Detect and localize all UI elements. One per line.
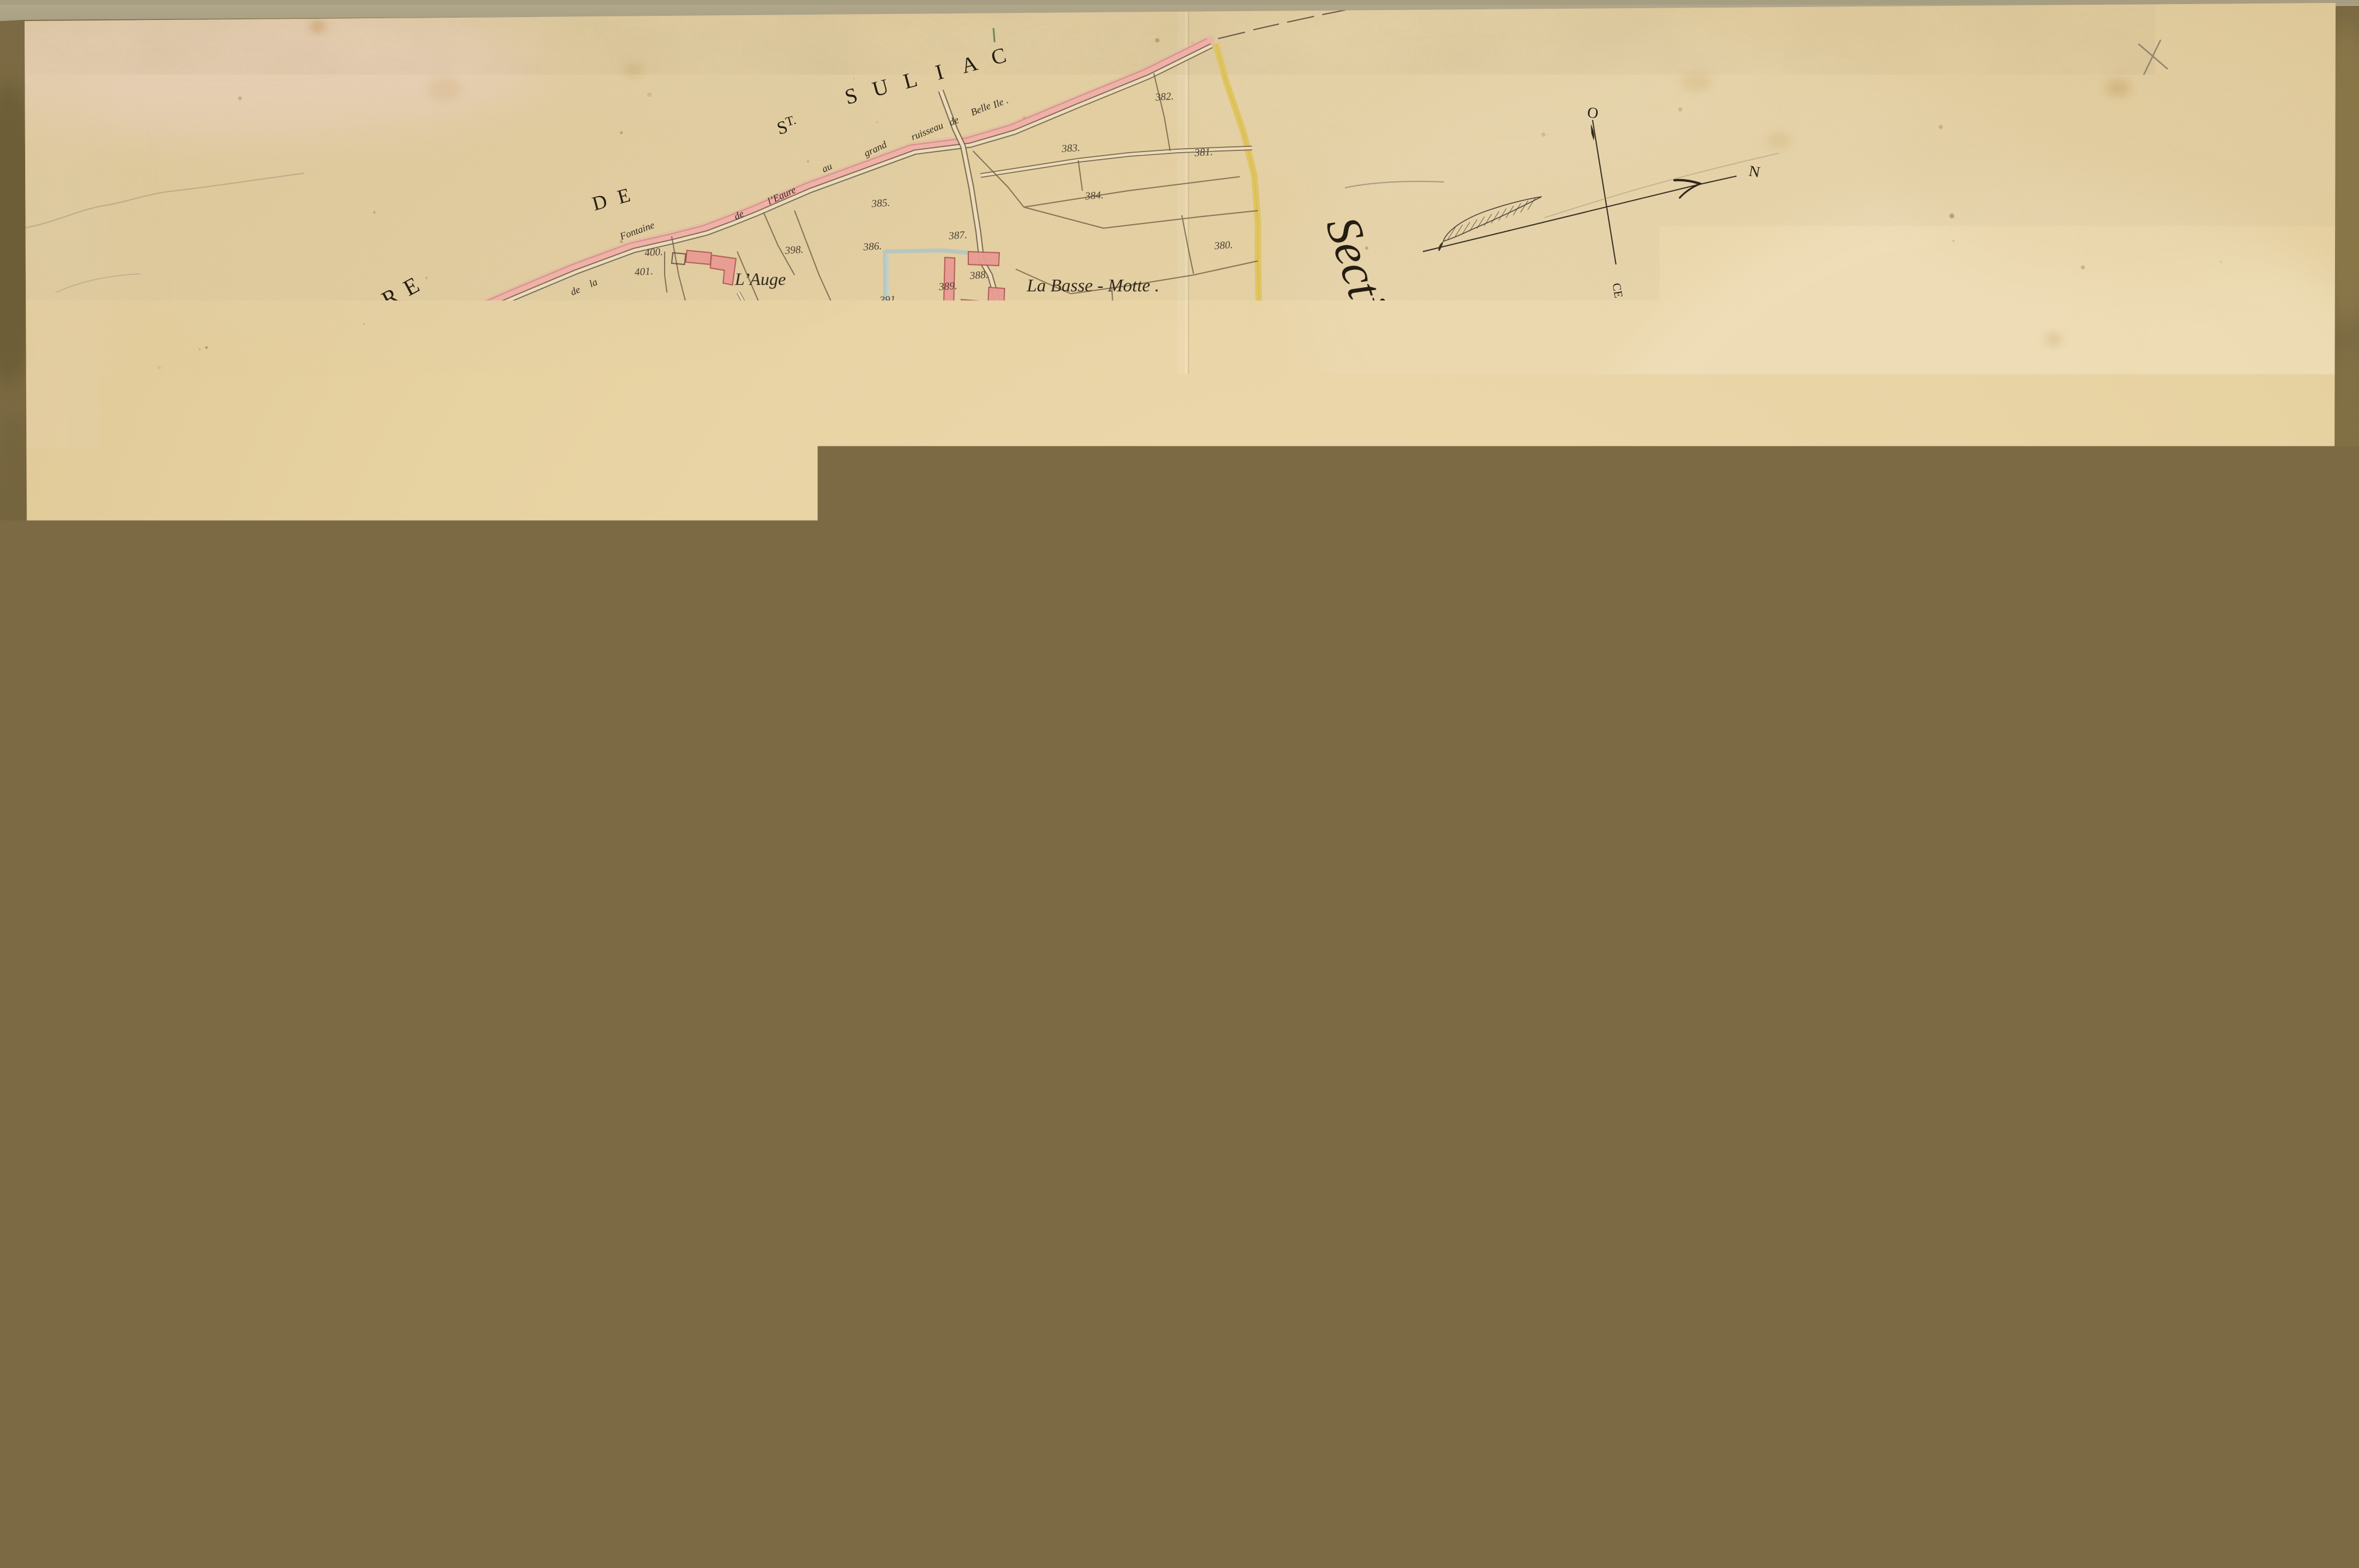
svg-text:432.: 432. [701, 699, 721, 711]
svg-text:344.: 344. [1483, 1111, 1503, 1124]
svg-text:426.: 426. [559, 820, 578, 833]
svg-text:422.: 422. [1084, 1140, 1103, 1153]
svg-text:353.: 353. [1181, 1107, 1201, 1120]
svg-text:398.: 398. [784, 243, 804, 256]
svg-text:419.: 419. [953, 909, 972, 922]
svg-text:351.: 351. [1216, 1141, 1236, 1154]
svg-text:425.: 425. [723, 849, 742, 862]
svg-text:362.: 362. [1213, 838, 1233, 851]
svg-text:381.: 381. [1194, 146, 1213, 159]
svg-text:408.: 408. [517, 546, 536, 559]
svg-text:436.: 436. [580, 625, 599, 638]
svg-text:399.: 399. [765, 324, 785, 337]
svg-text:424.: 424. [988, 1144, 1007, 1157]
svg-text:423.: 423. [1050, 1140, 1070, 1153]
svg-text:363.: 363. [1392, 837, 1412, 850]
svg-text:410.: 410. [562, 477, 582, 490]
svg-text:434.: 434. [690, 596, 709, 608]
svg-text:403.: 403. [455, 360, 474, 373]
svg-text:E: E [1468, 596, 1492, 638]
svg-text:360.: 360. [1139, 980, 1158, 993]
svg-text:348.: 348. [1373, 896, 1393, 909]
svg-text:382.: 382. [1154, 90, 1174, 103]
svg-text:L’Ecure .: L’Ecure . [333, 445, 390, 462]
svg-text:409.: 409. [561, 455, 580, 467]
svg-text:349.: 349. [1254, 1113, 1274, 1126]
svg-text:380.: 380. [1213, 239, 1233, 252]
svg-text:389.: 389. [938, 280, 958, 293]
svg-text:415.: 415. [919, 609, 938, 622]
svg-text:414.: 414. [783, 580, 803, 593]
svg-text:420.: 420. [982, 1034, 1002, 1047]
svg-text:367.: 367. [1295, 628, 1315, 641]
svg-text:441.: 441. [423, 733, 442, 745]
svg-text:368.: 368. [1356, 680, 1376, 693]
svg-text:La Basse - Motte .: La Basse - Motte . [1026, 275, 1159, 295]
svg-text:396.: 396. [970, 844, 990, 857]
svg-text:CE: CE [1610, 282, 1625, 299]
svg-text:369.: 369. [1302, 603, 1322, 615]
svg-text:390.: 390. [908, 300, 928, 312]
svg-text:341.: 341. [1714, 1218, 1734, 1231]
svg-text:393.: 393. [889, 334, 909, 347]
svg-text:397.: 397. [848, 401, 868, 414]
svg-text:395.: 395. [993, 953, 1013, 965]
svg-text:359.: 359. [1285, 999, 1305, 1012]
svg-text:377.: 377. [998, 313, 1017, 326]
svg-text:413.: 413. [783, 552, 803, 565]
svg-text:371.: 371. [1323, 538, 1343, 551]
svg-text:392.: 392. [847, 298, 867, 311]
svg-text:du No 336 , au No 449 .: du No 336 , au No 449 . [1897, 474, 2006, 487]
svg-text:400.: 400. [644, 246, 663, 259]
svg-text:388.: 388. [969, 269, 989, 281]
svg-text:404.: 404. [410, 398, 429, 411]
svg-text:365.: 365. [1224, 686, 1244, 699]
svg-text:401.: 401. [634, 265, 654, 278]
svg-text:391.: 391. [879, 293, 899, 306]
svg-text:421.: 421. [978, 1106, 998, 1119]
svg-text:O: O [1586, 104, 1600, 122]
svg-text:386.: 386. [862, 240, 882, 253]
svg-text:A l’échelle de 1 à 2000 .: A l’échelle de 1 à 2000 . [1865, 511, 2037, 531]
svg-text:394.: 394. [930, 398, 950, 411]
svg-text:Fontaine de Licastel .: Fontaine de Licastel . [1643, 1349, 1746, 1361]
svg-text:385.: 385. [871, 197, 890, 209]
svg-text:338.: 338. [1700, 958, 1720, 971]
svg-text:dite de: dite de [1926, 360, 1976, 381]
svg-text:416.: 416. [926, 710, 945, 723]
svg-text:345.: 345. [1449, 1153, 1469, 1166]
svg-text:Croix Bily .: Croix Bily . [105, 497, 159, 510]
svg-text:406.: 406. [416, 452, 435, 465]
svg-text:447.: 447. [315, 702, 335, 715]
svg-text:379.: 379. [1227, 305, 1247, 318]
svg-text:430.: 430. [563, 713, 583, 725]
svg-text:366.: 366. [1204, 645, 1224, 658]
svg-text:336 1er N°.: 336 1er N°. [1584, 948, 1641, 965]
svg-text:376.: 376. [1083, 412, 1103, 425]
svg-text:L’Auge: L’Auge [734, 270, 786, 289]
svg-text:417.: 417. [906, 816, 926, 829]
svg-text:352.: 352. [1172, 1129, 1192, 1142]
svg-text:448.: 448. [248, 479, 267, 491]
svg-text:346.: 346. [1446, 976, 1466, 989]
svg-text:437.: 437. [562, 589, 582, 602]
svg-text:339.: 339. [1639, 1167, 1659, 1180]
svg-text:433.: 433. [735, 692, 755, 704]
svg-text:Section E ,: Section E , [1868, 312, 2028, 353]
svg-text:373.: 373. [1301, 476, 1321, 489]
svg-text:370.: 370. [1311, 582, 1331, 595]
svg-text:LA MARELLE ,: LA MARELLE , [1837, 387, 2065, 422]
svg-text:435.: 435. [583, 640, 603, 653]
svg-text:361.: 361. [1140, 950, 1160, 962]
svg-text:347.: 347. [1370, 943, 1390, 956]
svg-text:375.: 375. [1129, 432, 1148, 445]
svg-text:342.: 342. [1559, 1182, 1579, 1195]
svg-text:418.: 418. [918, 911, 937, 924]
svg-text:402.: 402. [638, 387, 658, 400]
svg-text:374.: 374. [1249, 408, 1269, 421]
svg-text:372.: 372. [1257, 498, 1277, 511]
svg-text:340.: 340. [1651, 1178, 1671, 1191]
svg-text:350.: 350. [1228, 1116, 1248, 1129]
svg-text:449.: 449. [299, 543, 318, 556]
svg-text:en trois feuilles ,: en trois feuilles , [1882, 424, 2021, 448]
svg-text:427.: 427. [506, 725, 525, 738]
svg-text:378.: 378. [1104, 301, 1124, 314]
svg-text:439.: 439. [425, 630, 445, 643]
svg-text:405.: 405. [381, 419, 400, 432]
svg-text:337.: 337. [1675, 881, 1695, 893]
svg-text:364.: 364. [1384, 804, 1404, 817]
svg-text:la Basse - Cour .: la Basse - Cour . [1075, 1184, 1186, 1202]
svg-text:429.: 429. [538, 718, 557, 731]
svg-text:387.: 387. [948, 229, 968, 242]
svg-text:412.: 412. [783, 532, 803, 545]
svg-text:358.: 358. [1163, 1055, 1182, 1068]
svg-text:446.: 446. [338, 715, 357, 728]
svg-text:440.: 440. [447, 731, 466, 744]
svg-text:383.: 383. [1061, 142, 1081, 154]
svg-text:384.: 384. [1084, 189, 1104, 202]
svg-text:343.: 343. [1593, 1123, 1613, 1136]
svg-text:431.: 431. [588, 707, 607, 720]
svg-text:438.: 438. [457, 608, 476, 621]
svg-text:411.: 411. [564, 498, 582, 511]
